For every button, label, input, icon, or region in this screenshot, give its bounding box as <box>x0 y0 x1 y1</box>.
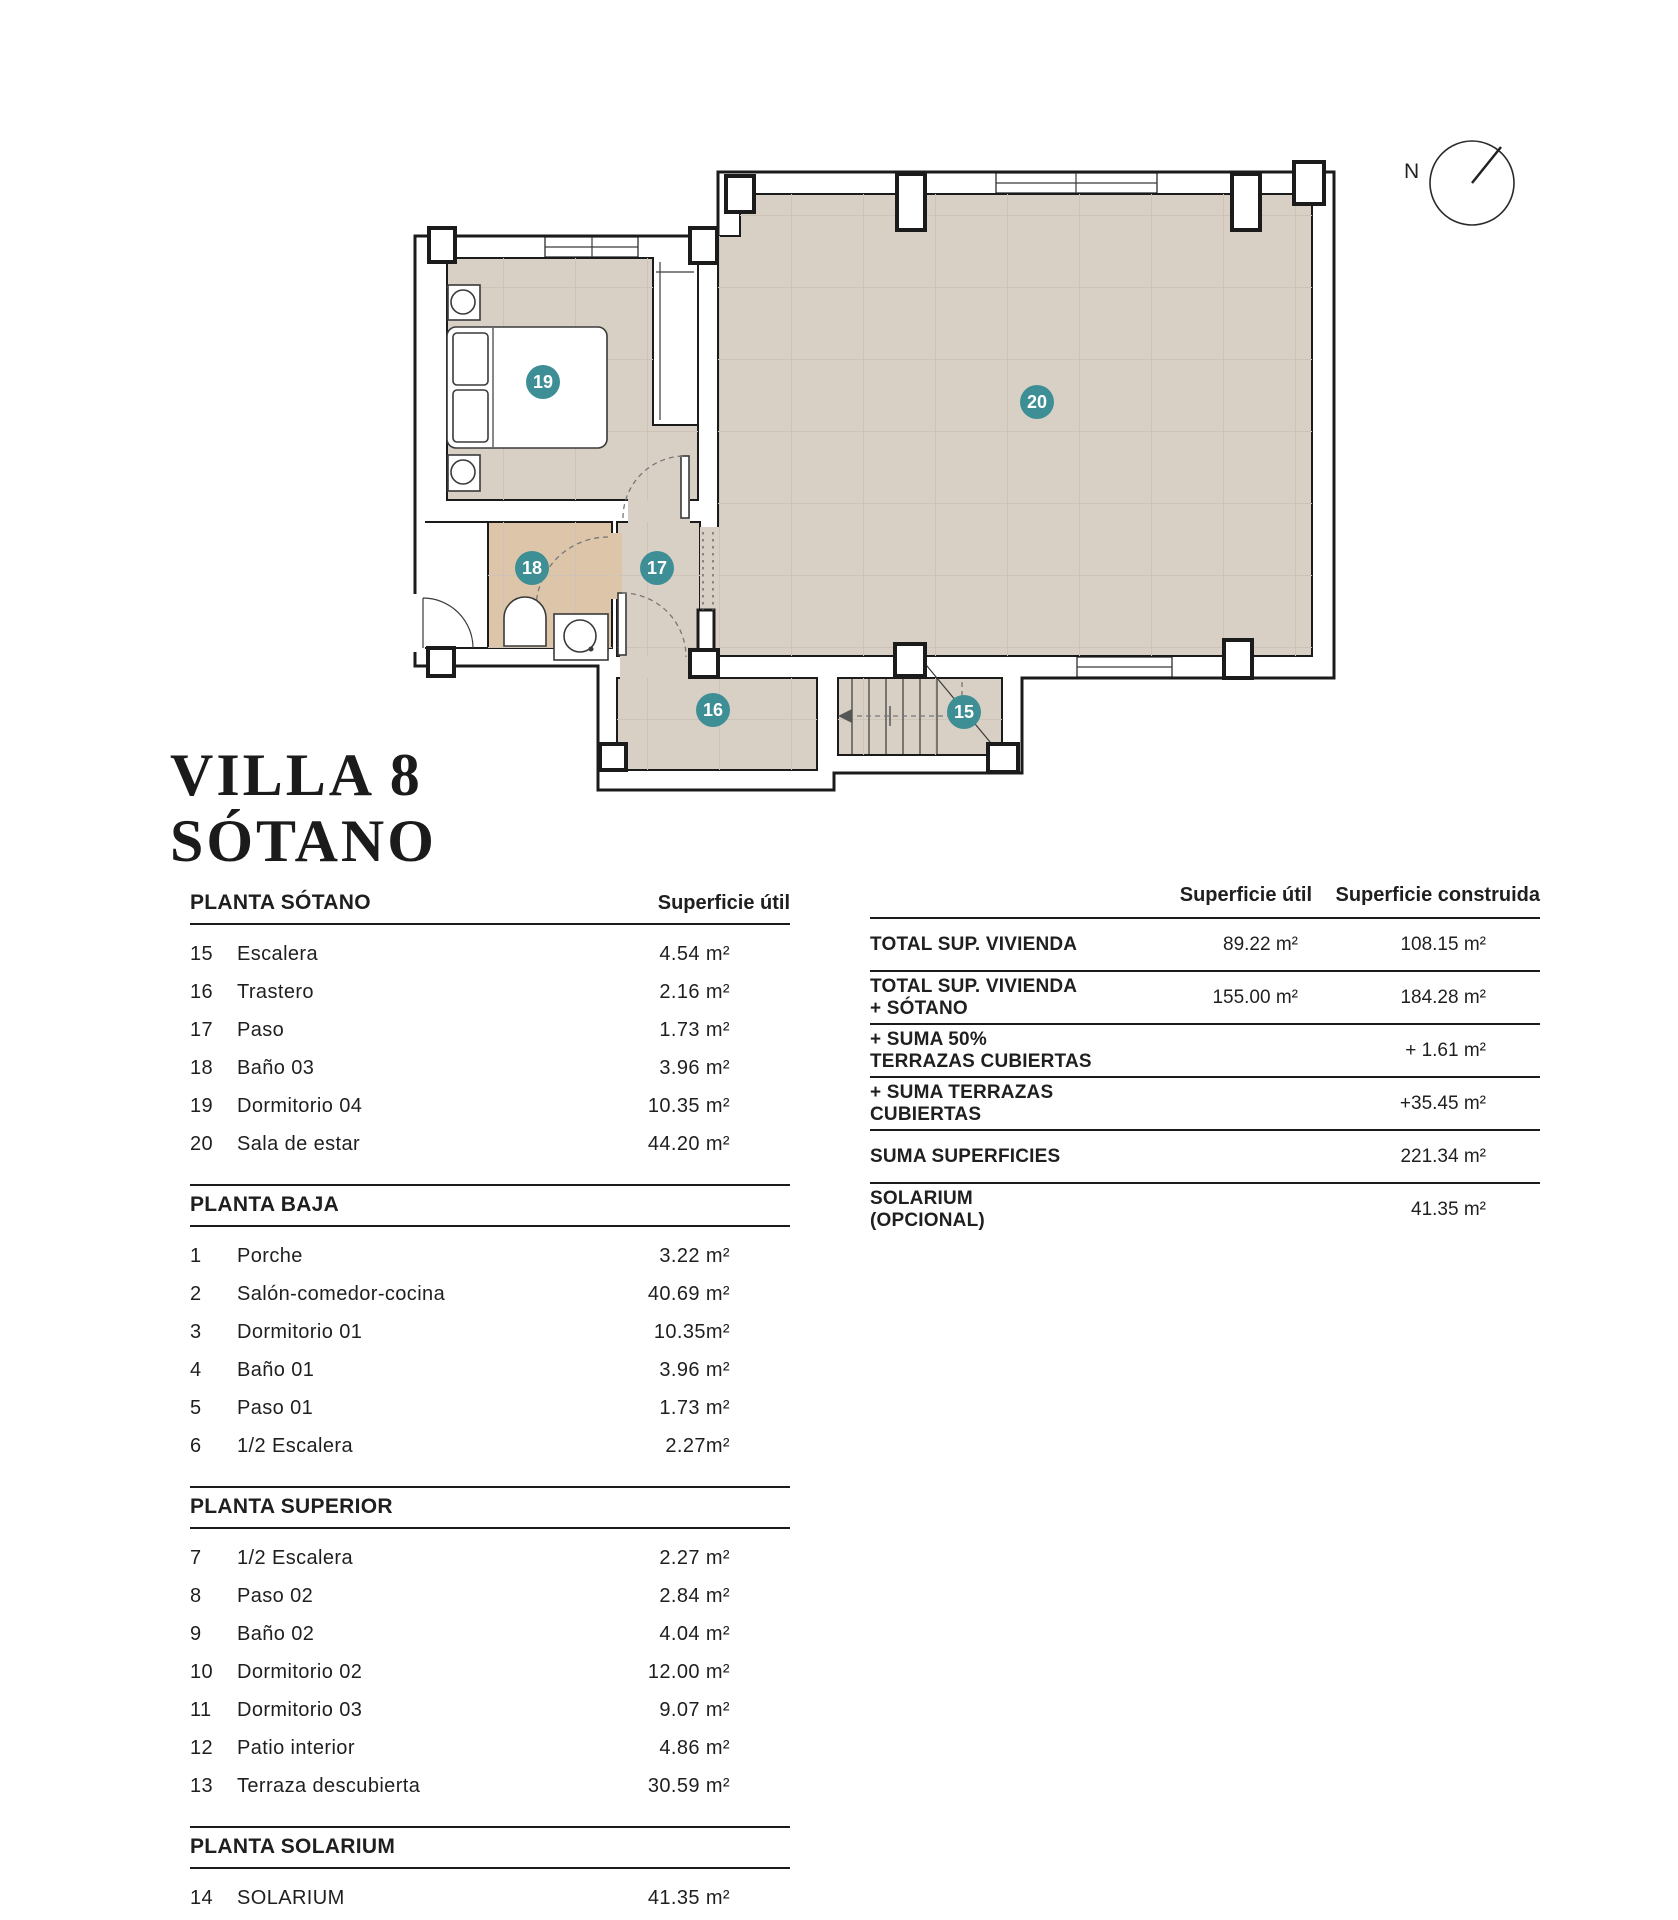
row-label: Dormitorio 03 <box>237 1699 659 1722</box>
svg-text:17: 17 <box>647 558 667 578</box>
table-row: 3Dormitorio 0110.35m² <box>190 1313 790 1351</box>
compass: N <box>1404 141 1514 225</box>
totals-built-value: +35.45 m² <box>1312 1093 1540 1115</box>
title-line-2: SÓTANO <box>170 808 437 874</box>
page-title: VILLA 8SÓTANO <box>170 742 437 874</box>
totals-table: Superficie útil Superficie construida TO… <box>870 884 1540 1235</box>
row-area: 40.69 m² <box>648 1283 730 1306</box>
row-number: 5 <box>190 1397 237 1420</box>
room-marker-20: 20 <box>1020 385 1054 419</box>
row-area: 30.59 m² <box>648 1775 730 1798</box>
row-label: Dormitorio 01 <box>237 1321 654 1344</box>
table-row: 61/2 Escalera2.27m² <box>190 1427 790 1465</box>
row-number: 17 <box>190 1019 237 1042</box>
row-number: 16 <box>190 981 237 1004</box>
col-header-superficie-construida: Superficie construida <box>1312 884 1540 907</box>
row-label: Terraza descubierta <box>237 1775 648 1798</box>
table-row: 5Paso 011.73 m² <box>190 1389 790 1427</box>
row-number: 11 <box>190 1699 237 1722</box>
totals-row: TOTAL SUP. VIVIENDA89.22 m²108.15 m² <box>870 919 1540 972</box>
row-number: 14 <box>190 1887 237 1910</box>
table-row: 13Terraza descubierta30.59 m² <box>190 1767 790 1805</box>
area-column-header: Superficie útil <box>658 892 790 915</box>
totals-built-value: + 1.61 m² <box>1312 1040 1540 1062</box>
table-row: 20Sala de estar44.20 m² <box>190 1125 790 1163</box>
row-number: 1 <box>190 1245 237 1268</box>
row-number: 12 <box>190 1737 237 1760</box>
row-area: 10.35 m² <box>648 1095 730 1118</box>
svg-text:15: 15 <box>954 702 974 722</box>
page: 15 16 17 18 19 20 N VILLA 8SÓTANO <box>0 0 1678 1920</box>
row-label: Dormitorio 04 <box>237 1095 648 1118</box>
row-number: 3 <box>190 1321 237 1344</box>
row-area: 2.27m² <box>665 1435 730 1458</box>
row-number: 2 <box>190 1283 237 1306</box>
totals-built-value: 108.15 m² <box>1312 934 1540 956</box>
row-area: 3.22 m² <box>659 1245 730 1268</box>
totals-header: Superficie útil Superficie construida <box>870 884 1540 919</box>
row-label: SOLARIUM <box>237 1887 648 1910</box>
row-number: 8 <box>190 1585 237 1608</box>
totals-util-value: 89.22 m² <box>1102 934 1312 956</box>
room-marker-19: 19 <box>526 365 560 399</box>
table-row: 19Dormitorio 0410.35 m² <box>190 1087 790 1125</box>
row-label: 1/2 Escalera <box>237 1435 665 1458</box>
row-label: Sala de estar <box>237 1133 648 1156</box>
totals-row: SOLARIUM (OPCIONAL)41.35 m² <box>870 1184 1540 1235</box>
row-area: 3.96 m² <box>659 1359 730 1382</box>
row-area: 10.35m² <box>654 1321 730 1344</box>
row-label: Dormitorio 02 <box>237 1661 648 1684</box>
row-label: Paso 02 <box>237 1585 659 1608</box>
room-marker-16: 16 <box>696 693 730 727</box>
row-area: 1.73 m² <box>659 1019 730 1042</box>
row-area: 2.16 m² <box>659 981 730 1004</box>
section-planta-baja: PLANTA BAJA 1Porche3.22 m²2Salón-comedor… <box>190 1184 790 1471</box>
totals-util-value: 155.00 m² <box>1102 987 1312 1009</box>
table-row: 11Dormitorio 039.07 m² <box>190 1691 790 1729</box>
row-label: Porche <box>237 1245 659 1268</box>
table-row: 17Paso1.73 m² <box>190 1011 790 1049</box>
section-planta-solarium: PLANTA SOLARIUM 14SOLARIUM41.35 m² <box>190 1826 790 1920</box>
sink <box>554 614 608 660</box>
table-row: 2Salón-comedor-cocina40.69 m² <box>190 1275 790 1313</box>
section-title: PLANTA SOLARIUM <box>190 1835 395 1859</box>
col-header-superficie-util: Superficie útil <box>1102 884 1312 907</box>
row-area: 44.20 m² <box>648 1133 730 1156</box>
table-row: 10Dormitorio 0212.00 m² <box>190 1653 790 1691</box>
totals-label: TOTAL SUP. VIVIENDA <box>870 934 1102 956</box>
row-number: 19 <box>190 1095 237 1118</box>
room-marker-17: 17 <box>640 551 674 585</box>
row-area: 41.35 m² <box>648 1887 730 1910</box>
row-area: 4.54 m² <box>659 943 730 966</box>
svg-text:16: 16 <box>703 700 723 720</box>
row-label: Baño 03 <box>237 1057 659 1080</box>
row-number: 20 <box>190 1133 237 1156</box>
svg-text:19: 19 <box>533 372 553 392</box>
compass-north-label: N <box>1404 160 1419 183</box>
svg-text:20: 20 <box>1027 392 1047 412</box>
table-row: 14SOLARIUM41.35 m² <box>190 1879 790 1917</box>
row-number: 6 <box>190 1435 237 1458</box>
table-row: 71/2 Escalera2.27 m² <box>190 1539 790 1577</box>
row-number: 10 <box>190 1661 237 1684</box>
table-row: 16Trastero2.16 m² <box>190 973 790 1011</box>
floor-plan: 15 16 17 18 19 20 N <box>0 0 1678 840</box>
row-area: 2.84 m² <box>659 1585 730 1608</box>
totals-label: SUMA SUPERFICIES <box>870 1146 1102 1168</box>
row-label: Escalera <box>237 943 659 966</box>
row-number: 18 <box>190 1057 237 1080</box>
totals-label: + SUMA 50% TERRAZAS CUBIERTAS <box>870 1029 1102 1073</box>
row-area: 2.27 m² <box>659 1547 730 1570</box>
room-marker-18: 18 <box>515 551 549 585</box>
row-number: 4 <box>190 1359 237 1382</box>
table-row: 4Baño 013.96 m² <box>190 1351 790 1389</box>
totals-label: + SUMA TERRAZAS CUBIERTAS <box>870 1082 1102 1126</box>
row-label: Patio interior <box>237 1737 659 1760</box>
section-planta-superior: PLANTA SUPERIOR 71/2 Escalera2.27 m²8Pas… <box>190 1486 790 1811</box>
toilet <box>504 597 546 646</box>
row-label: Paso 01 <box>237 1397 659 1420</box>
section-planta-sotano: PLANTA SÓTANO Superficie útil 15Escalera… <box>190 884 790 1169</box>
row-label: Trastero <box>237 981 659 1004</box>
table-row: 18Baño 033.96 m² <box>190 1049 790 1087</box>
row-label: Paso <box>237 1019 659 1042</box>
row-number: 13 <box>190 1775 237 1798</box>
row-area: 4.04 m² <box>659 1623 730 1646</box>
row-area: 1.73 m² <box>659 1397 730 1420</box>
section-title: PLANTA SUPERIOR <box>190 1495 393 1519</box>
table-row: 8Paso 022.84 m² <box>190 1577 790 1615</box>
title-line-1: VILLA 8 <box>170 742 423 808</box>
row-area: 4.86 m² <box>659 1737 730 1760</box>
svg-text:18: 18 <box>522 558 542 578</box>
room-areas-table: PLANTA SÓTANO Superficie útil 15Escalera… <box>190 884 790 1920</box>
totals-row: TOTAL SUP. VIVIENDA + SÓTANO155.00 m²184… <box>870 972 1540 1025</box>
row-area: 9.07 m² <box>659 1699 730 1722</box>
table-row: 12Patio interior4.86 m² <box>190 1729 790 1767</box>
totals-built-value: 184.28 m² <box>1312 987 1540 1009</box>
row-label: 1/2 Escalera <box>237 1547 659 1570</box>
section-title: PLANTA BAJA <box>190 1193 339 1217</box>
table-row: 1Porche3.22 m² <box>190 1237 790 1275</box>
totals-built-value: 41.35 m² <box>1312 1199 1540 1221</box>
totals-label: SOLARIUM (OPCIONAL) <box>870 1188 1102 1232</box>
row-number: 7 <box>190 1547 237 1570</box>
row-number: 15 <box>190 943 237 966</box>
row-label: Baño 02 <box>237 1623 659 1646</box>
totals-label: TOTAL SUP. VIVIENDA + SÓTANO <box>870 976 1102 1020</box>
totals-built-value: 221.34 m² <box>1312 1146 1540 1168</box>
section-title: PLANTA SÓTANO <box>190 891 371 915</box>
row-area: 3.96 m² <box>659 1057 730 1080</box>
room-marker-15: 15 <box>947 695 981 729</box>
totals-row: + SUMA TERRAZAS CUBIERTAS+35.45 m² <box>870 1078 1540 1131</box>
totals-row: SUMA SUPERFICIES221.34 m² <box>870 1131 1540 1184</box>
table-row: 9Baño 024.04 m² <box>190 1615 790 1653</box>
row-label: Baño 01 <box>237 1359 659 1382</box>
totals-row: + SUMA 50% TERRAZAS CUBIERTAS+ 1.61 m² <box>870 1025 1540 1078</box>
row-number: 9 <box>190 1623 237 1646</box>
row-area: 12.00 m² <box>648 1661 730 1684</box>
row-label: Salón-comedor-cocina <box>237 1283 648 1306</box>
table-row: 15Escalera4.54 m² <box>190 935 790 973</box>
